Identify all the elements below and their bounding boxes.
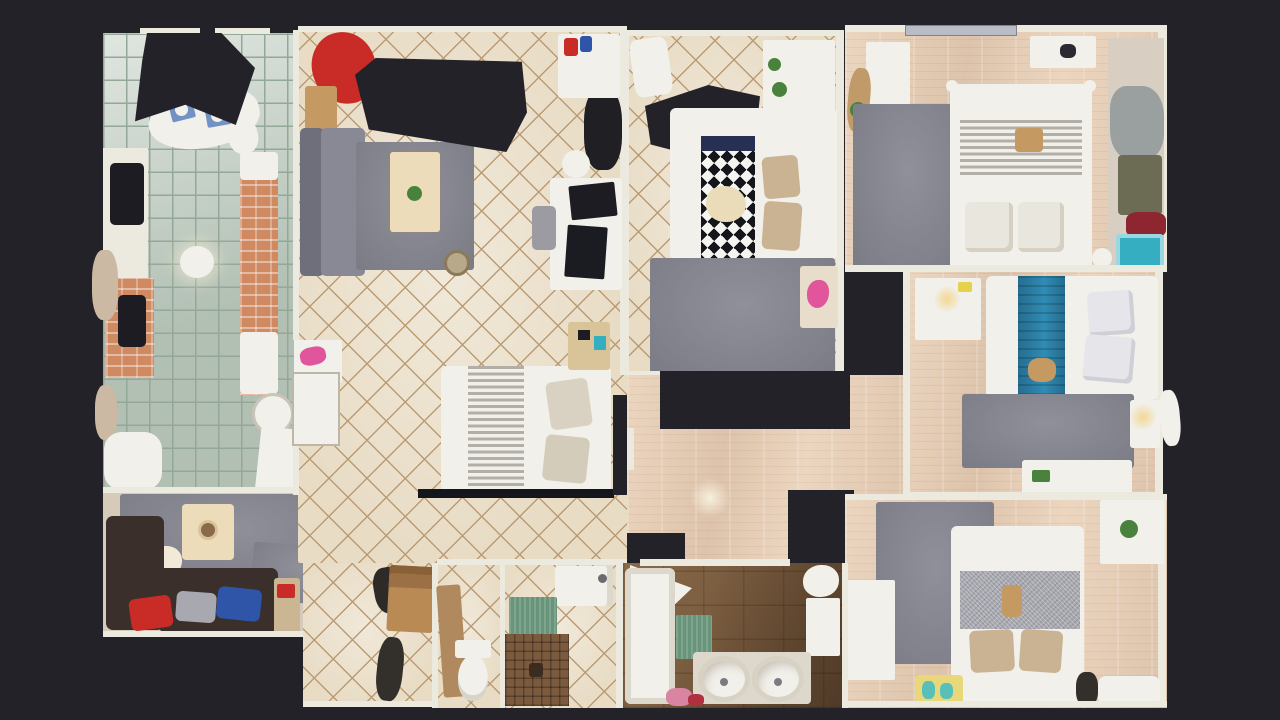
sink-faucet <box>774 678 782 686</box>
bath-top-wall <box>640 559 790 566</box>
bathtub <box>625 568 675 704</box>
bath-toilet <box>803 565 839 597</box>
floorplan-canvas[interactable]: Top-down dollhouse floor plan of a 3D-sc… <box>0 0 1280 720</box>
sink-faucet <box>720 678 728 686</box>
room-bath[interactable] <box>0 0 1280 720</box>
bath-cabinet <box>806 598 840 656</box>
bath-right-wall <box>842 563 848 708</box>
laundry-red <box>688 694 704 706</box>
